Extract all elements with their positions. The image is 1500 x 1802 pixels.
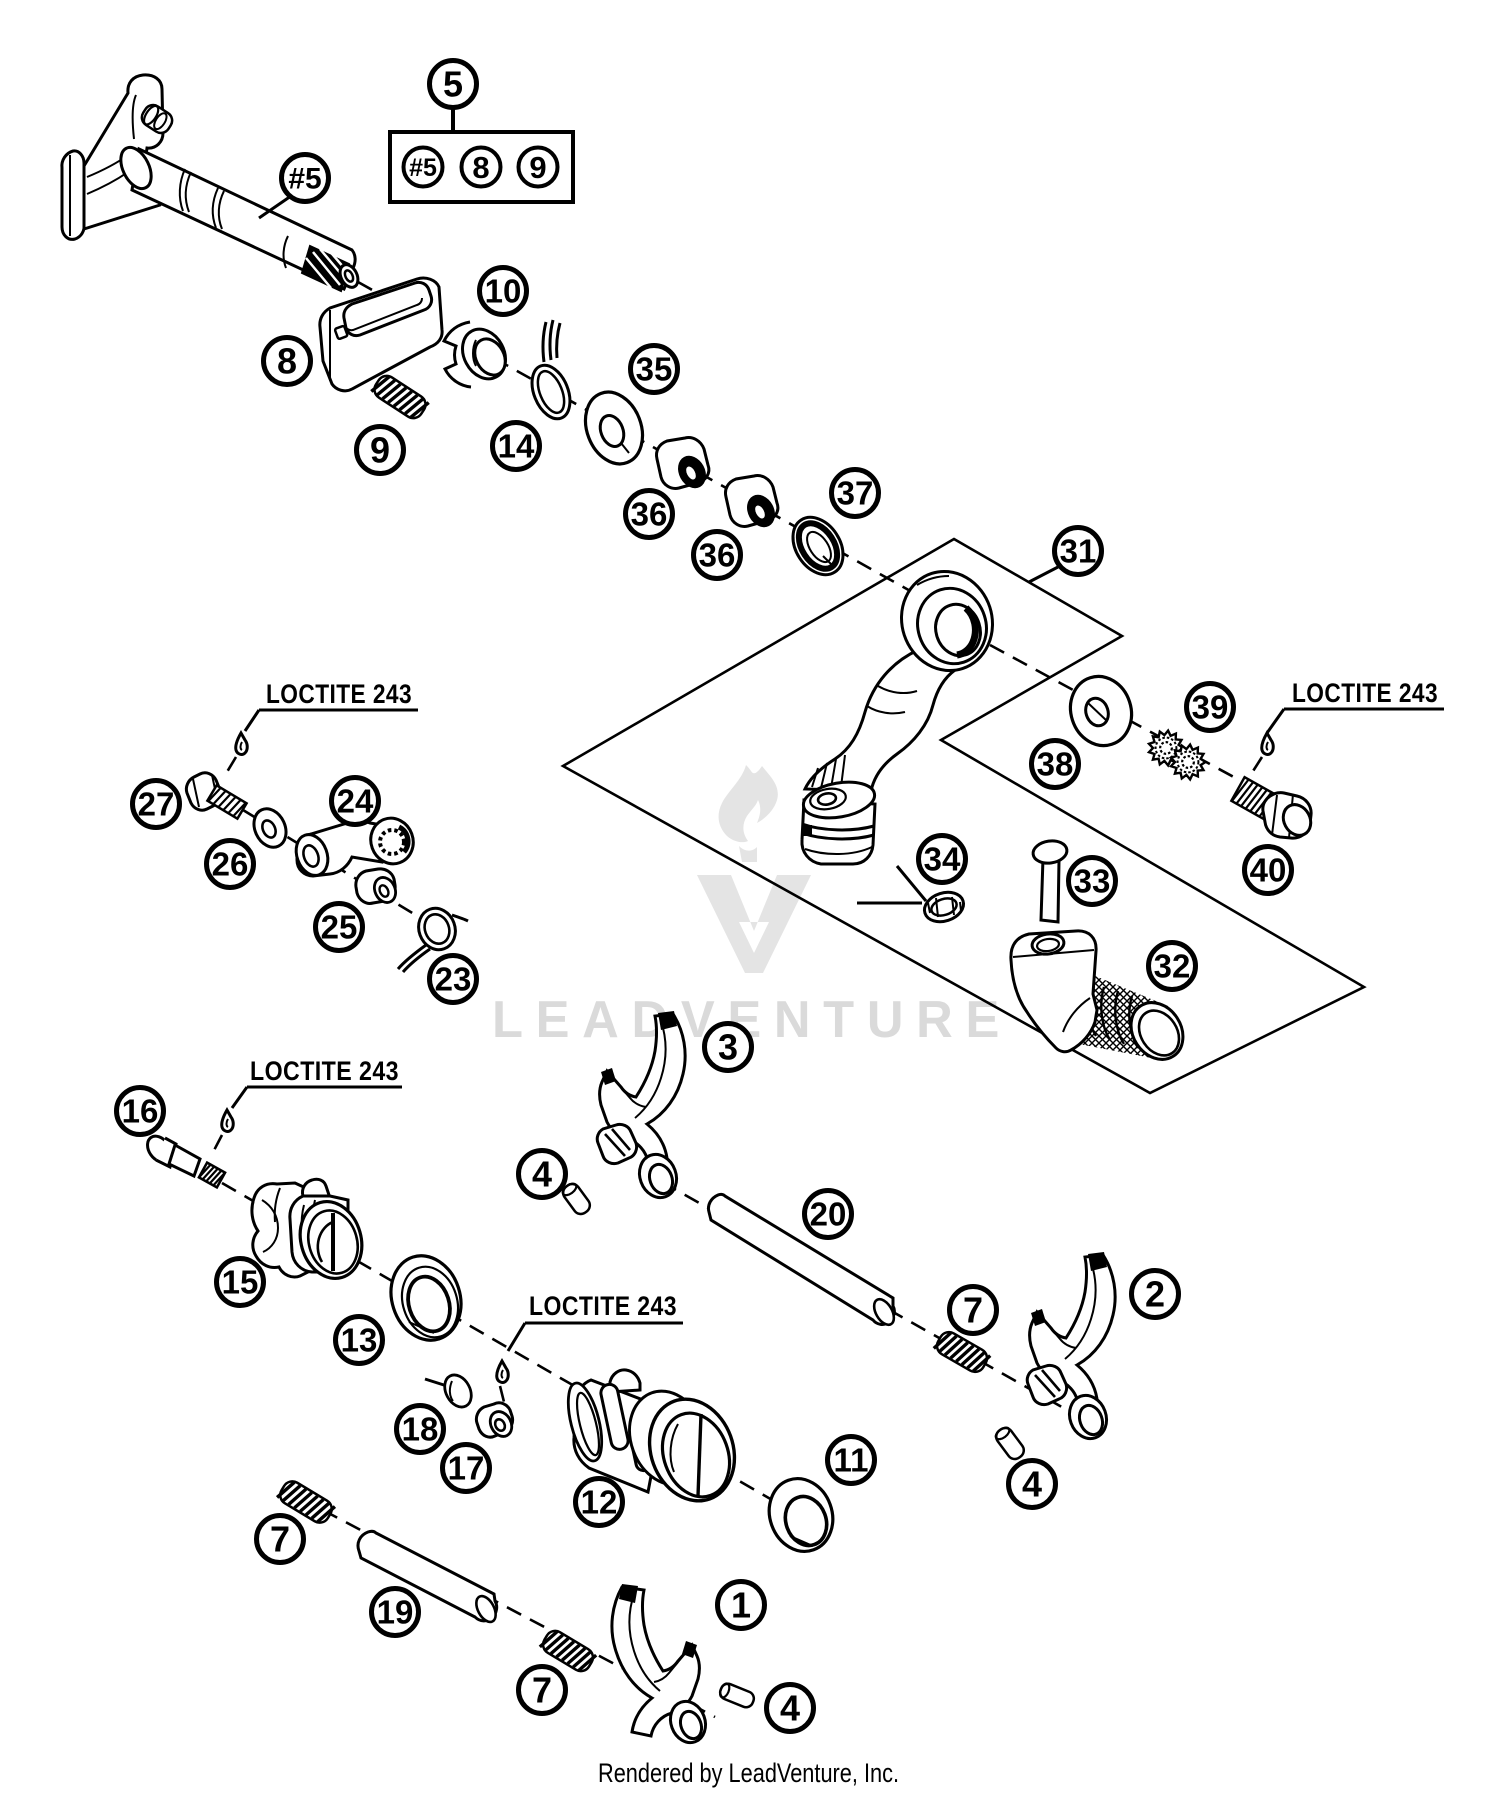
svg-text:36: 36 [699,537,736,574]
svg-text:33: 33 [1074,863,1111,900]
svg-text:32: 32 [1154,948,1191,985]
svg-text:5: 5 [443,64,463,105]
svg-text:LOCTITE 243: LOCTITE 243 [529,1291,677,1321]
svg-text:26: 26 [212,846,249,883]
svg-text:4: 4 [1022,1464,1042,1505]
svg-text:17: 17 [448,1450,485,1487]
svg-text:14: 14 [498,428,535,465]
svg-text:7: 7 [532,1670,552,1711]
svg-text:23: 23 [435,961,472,998]
svg-text:9: 9 [370,430,390,471]
svg-text:12: 12 [581,1484,618,1521]
svg-text:16: 16 [122,1093,159,1130]
svg-text:36: 36 [631,496,668,533]
svg-text:39: 39 [1192,689,1229,726]
svg-text:1: 1 [731,1585,751,1626]
svg-text:13: 13 [341,1322,378,1359]
svg-text:18: 18 [402,1411,439,1448]
svg-text:34: 34 [924,841,961,878]
svg-text:10: 10 [485,273,522,310]
svg-text:LOCTITE 243: LOCTITE 243 [1292,678,1438,708]
svg-text:9: 9 [529,150,546,185]
svg-text:40: 40 [1250,852,1287,889]
svg-text:25: 25 [321,909,358,946]
svg-text:24: 24 [337,783,374,820]
svg-text:4: 4 [532,1154,552,1195]
svg-text:7: 7 [270,1519,290,1560]
svg-text:3: 3 [718,1027,738,1068]
svg-text:35: 35 [636,351,673,388]
svg-text:27: 27 [138,786,175,823]
svg-text:31: 31 [1060,533,1097,570]
svg-text:8: 8 [472,150,489,185]
svg-text:37: 37 [837,475,874,512]
svg-text:LOCTITE 243: LOCTITE 243 [266,679,412,709]
svg-text:2: 2 [1145,1274,1165,1315]
svg-text:7: 7 [963,1290,983,1331]
svg-text:#5: #5 [288,163,321,196]
svg-text:LOCTITE 243: LOCTITE 243 [250,1056,399,1086]
svg-text:#5: #5 [409,154,437,182]
svg-text:4: 4 [780,1688,800,1729]
svg-text:11: 11 [834,1442,869,1479]
svg-text:38: 38 [1037,746,1074,783]
svg-text:15: 15 [222,1264,259,1301]
svg-text:20: 20 [810,1196,847,1233]
svg-text:19: 19 [377,1594,414,1631]
svg-text:8: 8 [277,341,297,382]
svg-text:Rendered by LeadVenture, Inc.: Rendered by LeadVenture, Inc. [598,1758,899,1788]
